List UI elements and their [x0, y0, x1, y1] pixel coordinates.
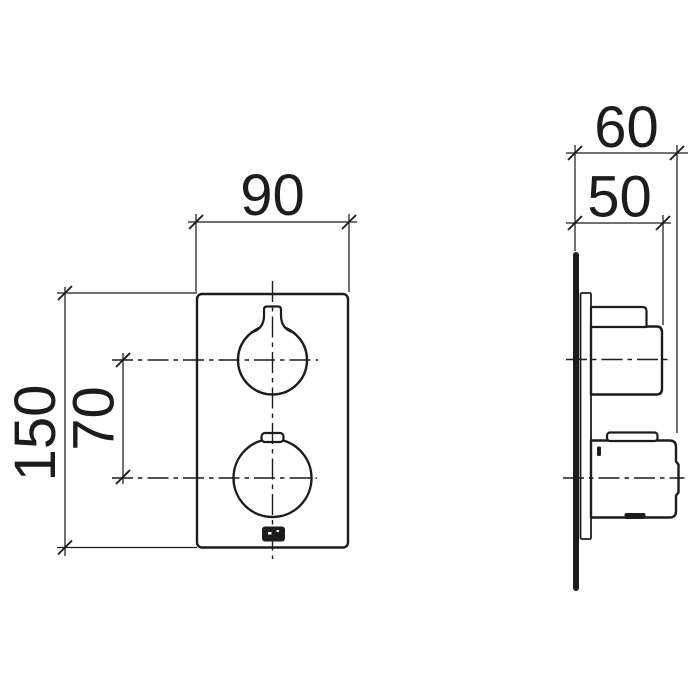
upper-knob-lever-profile — [591, 307, 647, 327]
dim-spacing-70: 70 — [62, 353, 131, 484]
lower-knob-tab-profile — [607, 433, 658, 442]
knob-bottom-marker — [625, 513, 646, 519]
brand-logo-mark — [262, 527, 285, 542]
dim-label-spacing: 70 — [62, 386, 127, 451]
technical-drawing: 90 150 70 — [0, 0, 700, 700]
side-view — [563, 252, 685, 591]
wall-surface-line — [573, 252, 579, 591]
dim-label-depth-total: 60 — [594, 95, 659, 160]
dim-label-depth-upper: 50 — [587, 165, 652, 230]
upper-knob-side-profile — [591, 327, 662, 395]
knob-detail-notch — [597, 447, 601, 457]
dim-label-width: 90 — [240, 163, 305, 228]
drawing-canvas: 90 150 70 — [0, 0, 700, 700]
dim-label-height: 150 — [3, 385, 68, 482]
dim-width-90: 90 — [188, 163, 357, 292]
escutcheon-profile — [581, 293, 592, 539]
front-view — [112, 281, 348, 559]
lower-knob-side-profile — [591, 441, 679, 518]
